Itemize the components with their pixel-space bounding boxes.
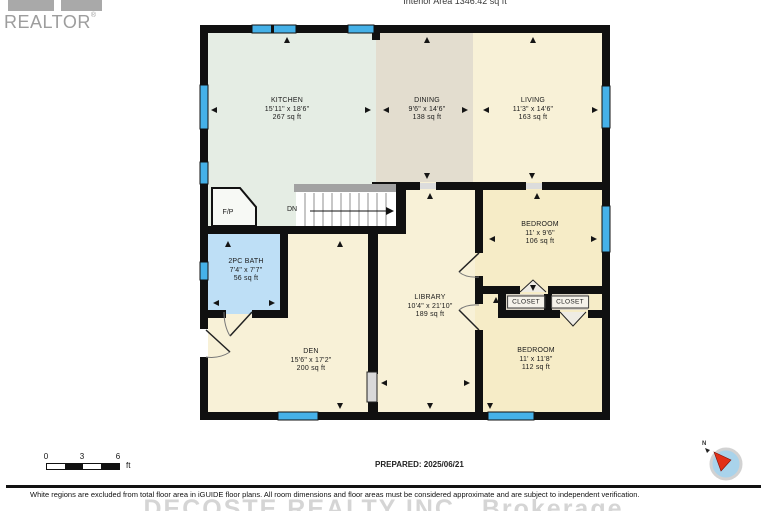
room-dimensions: 11' x 11'8" bbox=[466, 356, 606, 365]
interior-area-note: Interior Area 1346.42 sq ft bbox=[403, 0, 507, 6]
doorway-threshold bbox=[420, 183, 436, 189]
room-label-bath: 2PC BATH 7'4" x 7'7" 56 sq ft bbox=[176, 258, 316, 284]
footer-divider bbox=[6, 485, 761, 488]
realtor-logo-block-icon bbox=[8, 0, 54, 11]
doorway-threshold bbox=[526, 183, 542, 189]
entry-door-opening bbox=[200, 329, 208, 357]
kitchen-area bbox=[200, 25, 378, 230]
den-library-door bbox=[367, 372, 377, 402]
compass-north-arrow bbox=[705, 448, 710, 453]
room-label-living: LIVING 11'3" x 14'6" 163 sq ft bbox=[463, 97, 603, 123]
fireplace-shape bbox=[212, 188, 256, 226]
stair-header-bar bbox=[294, 184, 396, 192]
room-dimensions: 11' x 9'6" bbox=[470, 230, 610, 239]
room-dimensions: 10'4" x 21'10" bbox=[360, 303, 500, 312]
room-area: 267 sq ft bbox=[217, 114, 357, 123]
room-area: 200 sq ft bbox=[241, 365, 381, 374]
room-name: 2PC BATH bbox=[176, 258, 316, 267]
closet2-label: CLOSET bbox=[551, 296, 589, 309]
room-area: 112 sq ft bbox=[466, 364, 606, 373]
compass-north-label: N bbox=[702, 441, 706, 447]
bath-door bbox=[230, 312, 252, 336]
prepared-date: PREPARED: 2025/06/21 bbox=[375, 460, 464, 469]
scale-tick: 0 bbox=[44, 452, 48, 461]
registered-trademark: ® bbox=[91, 12, 97, 19]
library-area bbox=[376, 234, 475, 420]
window-mullion bbox=[271, 25, 274, 33]
room-label-bedroom-lower: BEDROOM 11' x 11'8" 112 sq ft bbox=[466, 347, 606, 373]
stairs-direction-arrow bbox=[386, 207, 394, 215]
floor-plan-page: Interior Area 1346.42 sq ft REALTOR® bbox=[0, 0, 767, 511]
room-name: LIBRARY bbox=[360, 294, 500, 303]
fireplace-label: F/P bbox=[223, 209, 234, 216]
room-dimensions: 11'3" x 14'6" bbox=[463, 106, 603, 115]
room-name: LIVING bbox=[463, 97, 603, 106]
library-area bbox=[394, 182, 475, 238]
room-label-library: LIBRARY 10'4" x 21'10" 189 sq ft bbox=[360, 294, 500, 320]
room-area: 56 sq ft bbox=[176, 275, 316, 284]
realtor-logo-text: REALTOR® bbox=[4, 12, 97, 33]
stairs bbox=[296, 190, 396, 226]
realtor-logo-block-icon bbox=[61, 0, 102, 11]
room-name: DEN bbox=[241, 348, 381, 357]
floor-plan-canvas bbox=[0, 0, 767, 511]
brokerage-watermark: DECOSTE REALTY INC., Brokerage bbox=[144, 495, 624, 511]
room-area: 106 sq ft bbox=[470, 238, 610, 247]
closet1-bifold-door bbox=[520, 280, 546, 292]
room-dimensions: 15'6" x 17'2" bbox=[241, 357, 381, 366]
scale-unit: ft bbox=[126, 461, 130, 470]
entry-door bbox=[206, 330, 230, 352]
scale-tick: 3 bbox=[80, 452, 84, 461]
room-dimensions: 7'4" x 7'7" bbox=[176, 267, 316, 276]
room-name: KITCHEN bbox=[217, 97, 357, 106]
room-name: BEDROOM bbox=[470, 221, 610, 230]
room-name: BEDROOM bbox=[466, 347, 606, 356]
room-area: 163 sq ft bbox=[463, 114, 603, 123]
room-label-den: DEN 15'6" x 17'2" 200 sq ft bbox=[241, 348, 381, 374]
closet1-label: CLOSET bbox=[507, 296, 545, 309]
realtor-logo: REALTOR® bbox=[4, 0, 124, 42]
compass-icon bbox=[700, 438, 752, 490]
room-label-bedroom-upper: BEDROOM 11' x 9'6" 106 sq ft bbox=[470, 221, 610, 247]
scale-tick: 6 bbox=[116, 452, 120, 461]
scale-bar: 0 3 6 ft bbox=[46, 452, 146, 472]
bedroom-upper-door bbox=[459, 253, 479, 272]
room-dimensions: 15'11" x 18'6" bbox=[217, 106, 357, 115]
room-area: 189 sq ft bbox=[360, 311, 500, 320]
room-label-kitchen: KITCHEN 15'11" x 18'6" 267 sq ft bbox=[217, 97, 357, 123]
scale-bar-segments bbox=[46, 463, 120, 470]
den-area bbox=[200, 226, 370, 420]
stairs-dn-label: DN bbox=[287, 206, 297, 213]
closet2-bifold-door bbox=[560, 312, 586, 326]
